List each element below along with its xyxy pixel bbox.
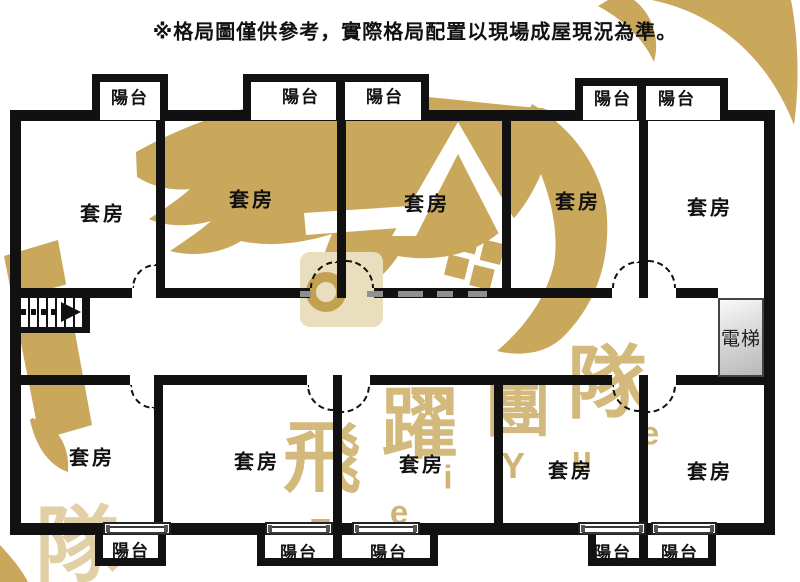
wall-divider bbox=[337, 110, 346, 298]
balcony-label: 陽台 bbox=[370, 539, 408, 564]
wall-corridor bbox=[158, 375, 307, 385]
watermark-gray-dash bbox=[468, 291, 487, 297]
balcony-label: 陽台 bbox=[661, 539, 699, 564]
room-label: 套房 bbox=[234, 446, 280, 475]
room-label: 套房 bbox=[404, 188, 450, 217]
balcony-label: 陽台 bbox=[658, 85, 696, 110]
wall-corridor bbox=[160, 288, 310, 298]
wall-corridor bbox=[10, 375, 130, 385]
wall-corridor bbox=[370, 375, 612, 385]
window-icon bbox=[265, 522, 333, 535]
window-icon bbox=[651, 522, 717, 535]
gold-corner-bottom-left bbox=[0, 545, 28, 582]
floorplan: 飛 躍 團 隊 隊 F e i Y u e ※格局圖僅供參考，實際格局配置以現場… bbox=[0, 0, 800, 582]
wall-divider bbox=[639, 375, 648, 535]
room-label: 套房 bbox=[687, 456, 733, 485]
room-label: 套房 bbox=[687, 192, 733, 221]
balcony-label: 陽台 bbox=[366, 83, 404, 108]
wall-divider bbox=[494, 375, 503, 535]
balcony-divider bbox=[336, 74, 345, 120]
room-label: 套房 bbox=[80, 198, 126, 227]
elevator: 電梯 bbox=[718, 298, 764, 377]
stairs-arrow-dashes bbox=[21, 309, 59, 315]
wall-divider bbox=[502, 110, 511, 298]
balcony-label: 陽台 bbox=[594, 539, 632, 564]
stairs-arrow-icon bbox=[61, 302, 81, 322]
wall-outer-right bbox=[764, 110, 775, 535]
balcony-label: 陽台 bbox=[111, 84, 149, 109]
balcony-label: 陽台 bbox=[112, 537, 150, 562]
elevator-label: 電梯 bbox=[721, 324, 761, 351]
room-label: 套房 bbox=[229, 184, 275, 213]
balcony-label: 陽台 bbox=[594, 85, 632, 110]
watermark-letter: Y bbox=[501, 448, 525, 484]
wall-divider bbox=[639, 110, 648, 298]
wall-divider bbox=[156, 110, 165, 298]
room-label: 套房 bbox=[399, 449, 445, 478]
watermark-gray-dash bbox=[367, 291, 383, 297]
balcony-divider bbox=[637, 78, 646, 120]
disclaimer-text: ※格局圖僅供參考，實際格局配置以現場成屋現況為準。 bbox=[153, 16, 677, 45]
watermark-gray-dash bbox=[300, 291, 311, 297]
balcony-label: 陽台 bbox=[280, 539, 318, 564]
balcony-divider bbox=[639, 535, 648, 566]
wall-corridor bbox=[676, 288, 718, 298]
watermark-gray-dash bbox=[437, 291, 453, 297]
window-icon bbox=[103, 522, 171, 535]
wall-divider bbox=[154, 375, 163, 535]
room-label: 套房 bbox=[548, 455, 594, 484]
watermark-char: 飛 bbox=[283, 419, 361, 497]
room-label: 套房 bbox=[69, 442, 115, 471]
wall-divider bbox=[333, 375, 342, 535]
watermark-gray-dash bbox=[398, 291, 423, 297]
room-label: 套房 bbox=[555, 186, 601, 215]
balcony-label: 陽台 bbox=[282, 83, 320, 108]
window-icon bbox=[352, 522, 420, 535]
balcony-divider bbox=[333, 535, 342, 566]
window-icon bbox=[578, 522, 646, 535]
